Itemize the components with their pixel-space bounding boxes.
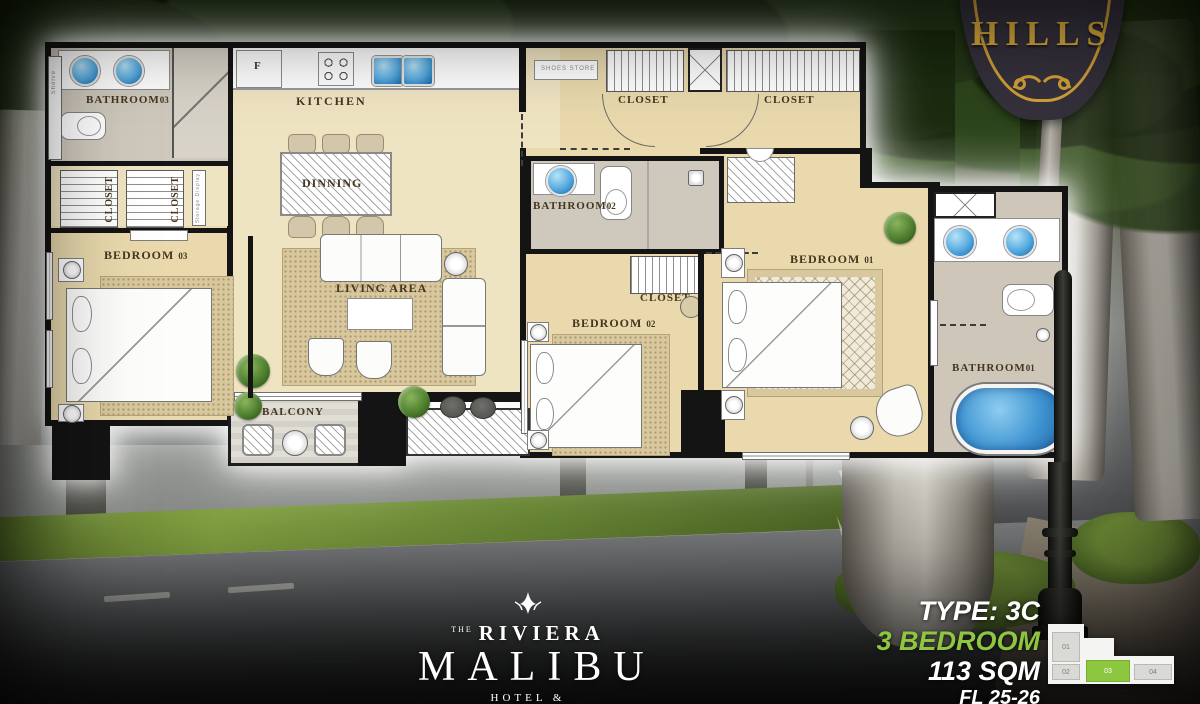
bathroom02-shower-head [688, 170, 704, 186]
bedroom02-label: BEDROOM 02 [572, 316, 655, 331]
bathroom01-towel-rail [930, 300, 938, 366]
keyplan-unit-04: 04 [1134, 664, 1172, 680]
living-armchair-2 [356, 341, 392, 379]
shelve-label: Shelve [51, 70, 57, 94]
bathroom03-shower [172, 48, 228, 158]
unit-floor: FL 25-26 [790, 687, 1040, 704]
dining-chair-4 [288, 216, 316, 238]
logo-malibu: MALIBU [418, 644, 648, 690]
window-bedroom01 [742, 452, 850, 460]
wall-closet-right [228, 166, 233, 232]
bedroom03-lamp-2 [63, 405, 81, 423]
bathroom03-sink-1 [70, 56, 100, 86]
bathroom02-sink [546, 166, 576, 196]
fridge-label: F [254, 60, 262, 72]
keyplan-unit-01: 01 [1052, 632, 1080, 662]
balcony-label: BALCONY [262, 406, 324, 418]
bedroom01-lamp-2 [725, 396, 743, 414]
bedroom03-label: BEDROOM 03 [104, 248, 187, 263]
balcony-table [282, 430, 308, 456]
shaft-entry [688, 48, 722, 92]
shoes-store-label: SHOES STORE [541, 66, 595, 72]
bedroom03-dresser [130, 230, 188, 241]
logo-riviera: RIVIERA [479, 623, 605, 644]
bedroom02-lamp-1 [530, 324, 547, 341]
ceiling-dash-bath02 [560, 148, 630, 150]
window-bedroom03-2 [46, 330, 53, 388]
closet-top-1 [606, 50, 684, 92]
bedroom03-pillow-2 [72, 348, 92, 384]
keyplan-unit-02: 02 [1052, 664, 1080, 680]
living-sofa-right [442, 278, 486, 376]
living-sofa-top [320, 234, 442, 282]
lamp-post-ring-1 [1042, 528, 1078, 537]
bathroom01-bathtub [952, 384, 1068, 454]
wall-bottom-left-block [52, 424, 110, 480]
wall-shaft-bed02 [681, 390, 725, 452]
plant-living-corner [236, 354, 270, 388]
living-label: LIVING AREA [336, 281, 427, 296]
closet-top-2 [726, 50, 860, 92]
bathroom01-sink-1 [944, 226, 976, 258]
storage-label: Storage Display [195, 173, 201, 223]
bedroom03-lamp-1 [63, 261, 81, 279]
bathroom02-label: BATHROOM02 [533, 200, 616, 212]
ac-ledge [406, 408, 530, 456]
living-side-table [444, 252, 468, 276]
wall-bedroom03-living [248, 236, 253, 398]
unit-bedrooms: 3 BEDROOM [790, 626, 1040, 656]
bedroom01-pillow-1 [728, 290, 747, 324]
keyplan-unit-03: 03 [1086, 660, 1130, 682]
bathroom03-sink-2 [114, 56, 144, 86]
bathroom03-label: BATHROOM03 [86, 94, 169, 106]
closet-top-2-label: CLOSET [764, 94, 815, 106]
poster: HILLS BATHROOM03 Shelve [0, 0, 1200, 704]
logo-the: THE [451, 625, 473, 634]
stove [318, 52, 354, 86]
bathroom01-label: BATHROOM01 [952, 362, 1035, 374]
wall-shaft-balcony [358, 400, 406, 466]
living-armchair-1 [308, 338, 344, 376]
balcony-chair-1 [242, 424, 274, 456]
fleur-ornament-icon [511, 592, 545, 618]
toilet-bowl [1007, 289, 1035, 311]
bathroom03-toilet [60, 112, 106, 140]
bedroom01-pillow-2 [728, 338, 747, 372]
wall-notch [860, 148, 872, 188]
dinning-label: DINNING [302, 176, 362, 191]
bedroom02-lamp-2 [530, 432, 547, 449]
bedroom01-vanity [727, 157, 795, 203]
bedroom01-lamp-1 [725, 254, 743, 272]
bathroom01-sink-2 [1004, 226, 1036, 258]
lamp-post [1054, 270, 1072, 470]
closet-left-2-label: CLOSET [170, 176, 181, 223]
closet-left-1-label: CLOSET [104, 176, 115, 223]
plant-living-bottom [398, 386, 430, 418]
balcony-chair-2 [314, 424, 346, 456]
wall-bed01-top [700, 148, 872, 154]
living-coffee-table [347, 298, 413, 330]
bedroom02-pillow-2 [536, 398, 554, 430]
bedroom02-pillow-1 [536, 352, 554, 384]
wall-bed02-bed01 [698, 252, 704, 392]
living-stool-1 [440, 396, 466, 418]
unit-type: TYPE: 3C [790, 596, 1040, 626]
lamp-post-ring-2 [1044, 550, 1076, 557]
kitchen-label: KITCHEN [296, 94, 367, 109]
closet-mid [630, 256, 702, 294]
kitchen-sink-1 [372, 56, 404, 86]
unit-info: TYPE: 3C 3 BEDROOM 113 SQM FL 25-26 [790, 596, 1040, 704]
plant-bedroom01 [884, 212, 916, 244]
wall-kitchen-foyer [519, 46, 526, 112]
bathroom01-shower-head [1036, 328, 1050, 342]
living-stool-2 [470, 397, 496, 419]
lamp-post-lower [1048, 462, 1072, 592]
bathroom01-toilet [1002, 284, 1054, 316]
key-plan: 01 02 03 04 [1048, 618, 1178, 686]
window-bedroom02 [521, 340, 528, 434]
logo-tagline: HOTEL & RESIDENCE [444, 692, 612, 704]
toilet-bowl [77, 116, 101, 136]
shaft-bath01 [934, 192, 996, 218]
bedroom01-label: BEDROOM 01 [790, 252, 873, 267]
bedroom01-side-table [850, 416, 874, 440]
bedroom03-pillow-1 [72, 296, 92, 332]
ceiling-dash-entry [521, 114, 523, 166]
glass-dash-bath01 [940, 324, 986, 326]
brand-logo: THE RIVIERA MALIBU HOTEL & RESIDENCE [408, 592, 648, 704]
window-bedroom03-1 [46, 252, 53, 320]
kitchen-sink-2 [402, 56, 434, 86]
unit-area: 113 SQM [790, 656, 1040, 686]
